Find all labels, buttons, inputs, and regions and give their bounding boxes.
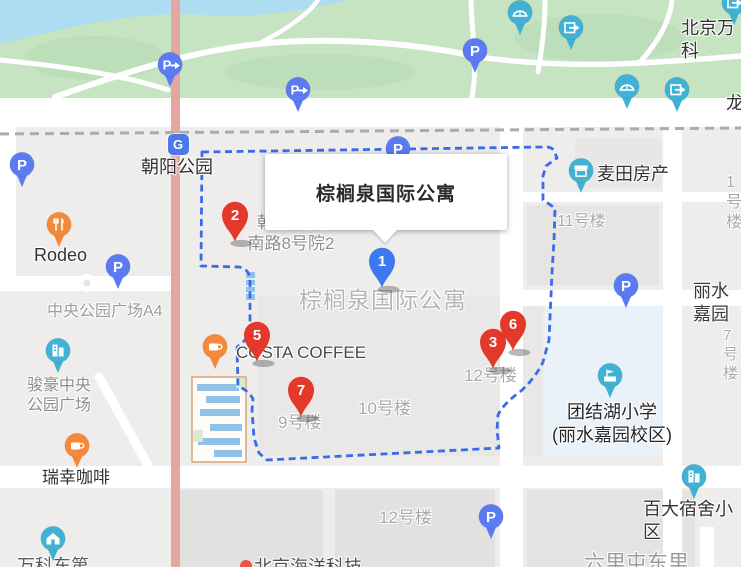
area-central-park-plaza-a4-label: 中央公园广场A4 xyxy=(47,302,163,322)
parking-icon-park-east[interactable]: P xyxy=(460,37,490,75)
building-10-label: 10号楼 xyxy=(358,398,411,419)
svg-text:P: P xyxy=(486,509,496,526)
area-junhao-central-park-plaza-label: 骏豪中央 公园广场 xyxy=(27,376,91,416)
parking-icon-left-edge[interactable]: P xyxy=(7,151,37,189)
poi-tuanjiehu-school-label: 团结湖小学 (丽水嘉园校区) xyxy=(552,401,672,446)
gate-icon-park-a[interactable] xyxy=(556,14,586,52)
result-pin-5[interactable]: 5 xyxy=(242,321,288,368)
map-canvas[interactable]: 朝阳公园Rodeo中央公园广场A4骏豪中央 公园广场瑞幸咖啡万科东第朝阳公园 南… xyxy=(0,0,741,567)
station-chaoyang-park-label: 朝阳公园 xyxy=(141,156,213,179)
parking-icon-east-street[interactable]: P xyxy=(611,272,641,310)
parking-icon-south[interactable]: P xyxy=(476,503,506,541)
building-icon-junhao[interactable] xyxy=(43,337,73,375)
svg-text:7: 7 xyxy=(297,382,305,399)
svg-text:1: 1 xyxy=(378,253,386,270)
result-pin-7[interactable]: 7 xyxy=(286,376,332,423)
area-long-partial-label: 龙 xyxy=(726,92,741,115)
bridge-icon-park-b[interactable] xyxy=(612,73,642,111)
parking-entrance-icon-park-mid[interactable]: P xyxy=(283,76,313,114)
gate-icon-park-b[interactable] xyxy=(662,76,692,114)
svg-text:P: P xyxy=(113,259,123,276)
parking-entrance-icon-park-west[interactable]: P xyxy=(155,51,185,89)
coffee-icon-costa[interactable] xyxy=(200,333,230,371)
building-icon-baida[interactable] xyxy=(679,463,709,501)
building-11-label: 11号楼 xyxy=(557,212,606,232)
area-baida-dormitory-label: 百大宿舍小区 xyxy=(643,498,741,543)
svg-text:P: P xyxy=(163,57,172,72)
building-1-label: 1号楼 xyxy=(726,173,741,233)
poi-maitian-realty-label: 麦田房产 xyxy=(597,163,669,186)
gate-icon-corner[interactable] xyxy=(719,0,741,27)
bridge-icon-park-a[interactable] xyxy=(505,0,535,37)
svg-text:P: P xyxy=(621,278,631,295)
result-pin-1-selected[interactable]: 1 xyxy=(367,247,413,294)
coffee-icon-luckin[interactable] xyxy=(62,432,92,470)
subway-station-icon[interactable]: G xyxy=(168,134,189,155)
svg-text:2: 2 xyxy=(231,207,239,224)
result-pin-2[interactable]: 2 xyxy=(220,201,266,248)
shop-icon-maitian[interactable] xyxy=(566,157,596,195)
selected-place-title: 棕榈泉国际公寓 xyxy=(316,179,456,206)
svg-text:3: 3 xyxy=(489,334,497,351)
poi-luckin-coffee-label: 瑞幸咖啡 xyxy=(42,467,110,488)
building-12-south-label: 12号楼 xyxy=(379,507,432,528)
result-pin-3[interactable]: 3 xyxy=(478,328,524,375)
parking-icon-plaza[interactable]: P xyxy=(103,253,133,291)
roundabout xyxy=(84,280,91,287)
poi-dot-partial[interactable] xyxy=(239,559,253,567)
restaurant-icon-rodeo[interactable] xyxy=(44,211,74,249)
svg-text:P: P xyxy=(17,157,27,174)
svg-text:P: P xyxy=(291,82,300,97)
card-pointer xyxy=(373,230,397,243)
area-liulitun-east-label: 六里屯东里 xyxy=(584,551,689,567)
svg-text:5: 5 xyxy=(253,327,261,344)
home-icon-vanke[interactable] xyxy=(38,525,68,563)
selected-place-card[interactable]: 棕榈泉国际公寓 xyxy=(265,154,507,230)
building-7-label: 7号楼 xyxy=(723,327,741,383)
poi-beijing-haiyang-label: 北京海洋科技 xyxy=(254,556,362,567)
area-lishui-jiayuan-label: 丽水嘉园 xyxy=(693,280,741,325)
school-icon-tuanjiehu[interactable] xyxy=(595,362,625,400)
svg-text:P: P xyxy=(470,43,480,60)
